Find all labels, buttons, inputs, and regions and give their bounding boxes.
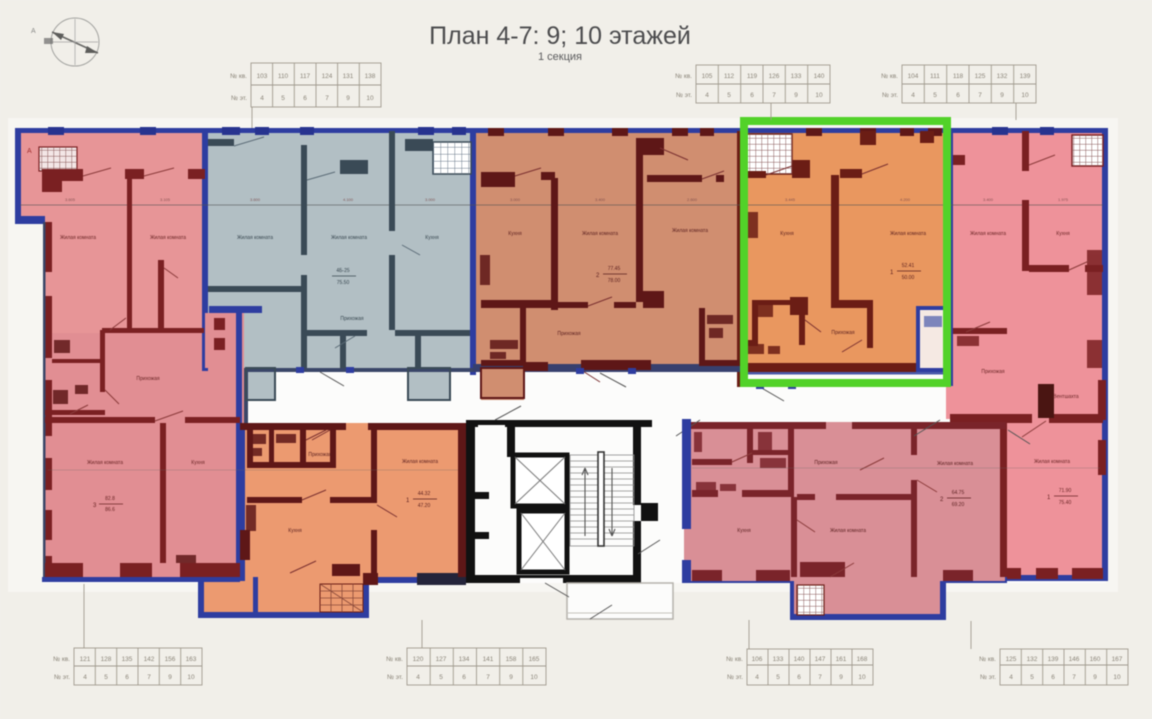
- svg-text:4.100: 4.100: [343, 197, 354, 202]
- svg-text:Кухня: Кухня: [1056, 231, 1070, 237]
- svg-text:132: 132: [1027, 656, 1038, 663]
- svg-text:9: 9: [346, 95, 350, 102]
- svg-text:Кухня: Кухня: [425, 235, 439, 241]
- svg-text:161: 161: [836, 656, 847, 663]
- svg-text:Жилая комната: Жилая комната: [890, 231, 926, 237]
- svg-text:7: 7: [1072, 674, 1076, 681]
- svg-text:121: 121: [80, 656, 91, 663]
- svg-text:112: 112: [724, 73, 735, 80]
- svg-text:№ эт.: № эт.: [231, 95, 247, 102]
- svg-text:Вентшахта: Вентшахта: [1053, 394, 1079, 400]
- svg-text:№ эт.: № эт.: [54, 674, 70, 681]
- svg-text:75.50: 75.50: [337, 280, 350, 286]
- svg-text:6: 6: [125, 674, 129, 681]
- svg-text:3.000: 3.000: [510, 197, 521, 202]
- svg-text:111: 111: [930, 73, 940, 80]
- svg-text:135: 135: [122, 656, 133, 663]
- svg-text:3.445: 3.445: [785, 197, 796, 202]
- svg-text:77.45: 77.45: [608, 266, 621, 272]
- svg-text:Кухня: Кухня: [780, 231, 794, 237]
- svg-text:75.40: 75.40: [1059, 500, 1072, 506]
- svg-text:6: 6: [303, 95, 307, 102]
- svg-text:7: 7: [147, 674, 151, 681]
- svg-text:№ кв.: № кв.: [230, 73, 247, 80]
- svg-text:9: 9: [1000, 92, 1004, 99]
- svg-text:7: 7: [978, 92, 982, 99]
- svg-text:165: 165: [529, 656, 540, 663]
- svg-text:138: 138: [365, 73, 376, 80]
- svg-text:160: 160: [1090, 656, 1101, 663]
- svg-text:№ эт.: № эт.: [676, 92, 692, 99]
- svg-text:128: 128: [101, 656, 112, 663]
- svg-text:140: 140: [794, 656, 805, 663]
- svg-text:А: А: [31, 28, 36, 35]
- svg-text:105: 105: [702, 73, 713, 80]
- svg-text:104: 104: [908, 73, 919, 80]
- svg-text:7: 7: [818, 674, 822, 681]
- svg-text:125: 125: [975, 73, 986, 80]
- svg-text:№ эт.: № эт.: [882, 92, 898, 99]
- svg-text:6: 6: [1051, 674, 1055, 681]
- svg-text:126: 126: [769, 73, 780, 80]
- svg-text:133: 133: [773, 656, 784, 663]
- svg-text:Кухня: Кухня: [508, 231, 522, 237]
- svg-text:Кухня: Кухня: [191, 460, 205, 466]
- svg-text:52.41: 52.41: [902, 263, 915, 269]
- svg-text:3.605: 3.605: [65, 197, 76, 202]
- svg-text:4: 4: [83, 674, 87, 681]
- svg-text:№ кв.: № кв.: [979, 656, 996, 663]
- svg-text:125: 125: [1006, 656, 1017, 663]
- svg-text:4: 4: [911, 92, 915, 99]
- svg-text:132: 132: [997, 73, 1008, 80]
- svg-text:5: 5: [933, 92, 937, 99]
- svg-text:Жилая комната: Жилая комната: [1034, 459, 1070, 465]
- svg-text:Жилая комната: Жилая комната: [87, 460, 123, 466]
- svg-text:142: 142: [144, 656, 155, 663]
- svg-text:7: 7: [325, 95, 329, 102]
- svg-text:Жилая комната: Жилая комната: [672, 228, 708, 234]
- svg-text:10: 10: [530, 674, 538, 681]
- svg-text:Прихожая: Прихожая: [557, 331, 580, 337]
- svg-text:47.20: 47.20: [418, 503, 431, 509]
- svg-text:7: 7: [772, 92, 776, 99]
- svg-text:110: 110: [278, 73, 289, 80]
- svg-text:133: 133: [791, 73, 802, 80]
- svg-text:156: 156: [165, 656, 176, 663]
- svg-text:163: 163: [186, 656, 197, 663]
- svg-text:71.90: 71.90: [1059, 488, 1072, 494]
- svg-text:6: 6: [462, 674, 466, 681]
- svg-text:Жилая комната: Жилая комната: [582, 231, 618, 237]
- svg-text:7: 7: [486, 674, 490, 681]
- svg-text:131: 131: [343, 73, 354, 80]
- svg-text:5: 5: [439, 674, 443, 681]
- svg-text:9: 9: [839, 674, 843, 681]
- svg-text:69.20: 69.20: [952, 502, 965, 508]
- svg-text:4: 4: [260, 95, 264, 102]
- svg-text:6: 6: [797, 674, 801, 681]
- svg-text:№ кв.: № кв.: [881, 73, 898, 80]
- svg-text:10: 10: [858, 674, 866, 681]
- svg-text:9: 9: [509, 674, 513, 681]
- svg-text:146: 146: [1069, 656, 1080, 663]
- svg-text:5: 5: [281, 95, 285, 102]
- svg-text:Жилая комната: Жилая комната: [402, 459, 438, 465]
- svg-text:4: 4: [1009, 674, 1013, 681]
- svg-text:№ кв.: № кв.: [675, 73, 692, 80]
- svg-text:3.000: 3.000: [425, 197, 436, 202]
- svg-text:5: 5: [727, 92, 731, 99]
- svg-text:9: 9: [794, 92, 798, 99]
- svg-text:10: 10: [1021, 92, 1029, 99]
- svg-text:139: 139: [1048, 656, 1059, 663]
- svg-text:9: 9: [168, 674, 172, 681]
- svg-text:5: 5: [1030, 674, 1034, 681]
- svg-text:78.00: 78.00: [608, 278, 621, 284]
- svg-text:6: 6: [750, 92, 754, 99]
- svg-text:134: 134: [459, 656, 470, 663]
- svg-text:10: 10: [187, 674, 195, 681]
- svg-text:10: 10: [1113, 674, 1121, 681]
- svg-text:44.32: 44.32: [418, 491, 431, 497]
- svg-text:Жилая комната: Жилая комната: [937, 461, 973, 467]
- svg-text:118: 118: [953, 73, 964, 80]
- svg-text:82.8: 82.8: [105, 496, 115, 502]
- svg-text:147: 147: [815, 656, 826, 663]
- svg-text:Прихожая: Прихожая: [136, 376, 159, 382]
- svg-text:106: 106: [752, 656, 763, 663]
- svg-text:168: 168: [857, 656, 868, 663]
- svg-text:167: 167: [1112, 656, 1123, 663]
- svg-text:№ кв.: № кв.: [726, 656, 743, 663]
- svg-text:1 секция: 1 секция: [538, 51, 582, 63]
- svg-text:Прихожая: Прихожая: [308, 452, 331, 458]
- svg-text:Жилая комната: Жилая комната: [60, 235, 96, 241]
- svg-text:158: 158: [506, 656, 517, 663]
- svg-text:120: 120: [413, 656, 424, 663]
- svg-text:64.75: 64.75: [952, 490, 965, 496]
- svg-text:Прихожая: Прихожая: [814, 460, 837, 466]
- svg-text:Жилая комната: Жилая комната: [237, 235, 273, 241]
- svg-text:Кухня: Кухня: [288, 528, 302, 534]
- svg-text:10: 10: [366, 95, 374, 102]
- svg-text:127: 127: [436, 656, 447, 663]
- svg-text:Жилая комната: Жилая комната: [331, 235, 367, 241]
- svg-text:Прихожая: Прихожая: [981, 369, 1004, 375]
- svg-text:№ эт.: № эт.: [980, 674, 996, 681]
- svg-text:10: 10: [815, 92, 823, 99]
- svg-text:86.6: 86.6: [105, 507, 115, 513]
- svg-text:3.400: 3.400: [983, 197, 994, 202]
- svg-text:Кухня: Кухня: [737, 528, 751, 534]
- svg-text:3.400: 3.400: [595, 197, 606, 202]
- svg-text:Жилая комната: Жилая комната: [150, 235, 186, 241]
- svg-text:4Б-25: 4Б-25: [336, 268, 350, 274]
- svg-text:141: 141: [483, 656, 494, 663]
- svg-text:140: 140: [814, 73, 825, 80]
- svg-text:119: 119: [747, 73, 758, 80]
- svg-text:№ кв.: № кв.: [53, 656, 70, 663]
- svg-text:6: 6: [956, 92, 960, 99]
- svg-text:План 4-7: 9; 10 этажей: План 4-7: 9; 10 этажей: [429, 22, 691, 50]
- svg-text:4: 4: [705, 92, 709, 99]
- svg-text:4.200: 4.200: [900, 197, 911, 202]
- svg-text:139: 139: [1020, 73, 1031, 80]
- svg-text:5: 5: [776, 674, 780, 681]
- svg-text:Жилая комната: Жилая комната: [970, 231, 1006, 237]
- svg-text:2.600: 2.600: [687, 197, 698, 202]
- svg-text:№ эт.: № эт.: [727, 674, 743, 681]
- svg-text:А: А: [27, 148, 32, 155]
- svg-text:4: 4: [755, 674, 759, 681]
- svg-text:№ кв.: № кв.: [386, 656, 403, 663]
- svg-text:3.105: 3.105: [160, 197, 171, 202]
- svg-text:№ эт.: № эт.: [387, 674, 403, 681]
- svg-text:103: 103: [257, 73, 268, 80]
- svg-text:50.00: 50.00: [902, 275, 915, 281]
- svg-text:Прихожая: Прихожая: [340, 316, 363, 322]
- svg-text:117: 117: [300, 73, 311, 80]
- svg-text:Прихожая: Прихожая: [831, 330, 854, 336]
- svg-text:5: 5: [104, 674, 108, 681]
- svg-text:124: 124: [322, 73, 333, 80]
- svg-text:Жилая комната: Жилая комната: [830, 528, 866, 534]
- svg-text:9: 9: [1093, 674, 1097, 681]
- svg-text:1.975: 1.975: [1058, 197, 1069, 202]
- svg-text:4: 4: [416, 674, 420, 681]
- svg-text:3.600: 3.600: [250, 197, 261, 202]
